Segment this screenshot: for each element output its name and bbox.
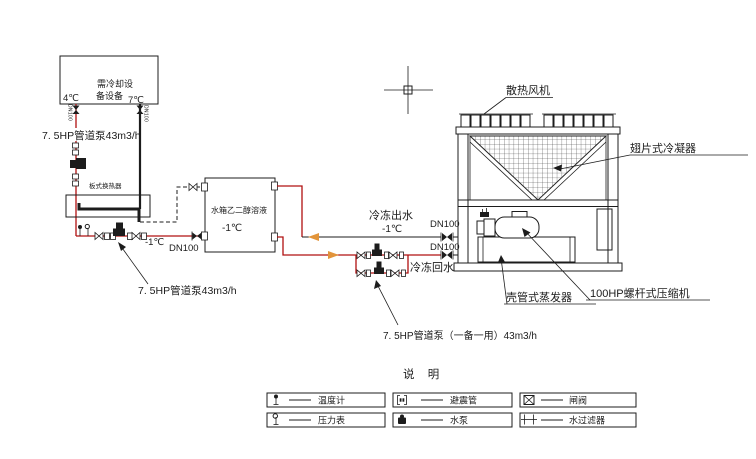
fan-assembly <box>459 114 616 127</box>
plate-heat-exchanger: 板式换热器 <box>66 181 150 222</box>
tank-label: 水箱乙二醇溶液 <box>211 205 267 215</box>
valve-icon <box>73 106 80 115</box>
compressor <box>477 208 539 238</box>
legend-cell-flex-connector: 避震管 <box>393 393 512 407</box>
flow-arrow-left-icon <box>308 233 319 241</box>
chiller-base <box>454 263 622 271</box>
legend-label: 压力表 <box>318 415 345 426</box>
inline-pump-icon <box>113 223 125 237</box>
valve-icon <box>137 106 144 115</box>
valve-icon <box>132 233 140 240</box>
fan-callout: 散热风机 <box>484 83 553 114</box>
drawing-canvas: 需冷却设 备设备 4℃ 7℃ DN100 DN100 7. 5HP管道泵43m3… <box>0 0 756 459</box>
return-pipe-7c: DN100 <box>137 104 149 209</box>
crosshair-marker <box>384 66 433 114</box>
cooling-load-label-line2: 备设备 <box>96 90 123 101</box>
legend-label: 避震管 <box>450 395 477 406</box>
glycol-dashed-pipe <box>140 184 201 223</box>
legend-cell-gate-valve: 闸阀 <box>520 393 636 407</box>
piping-diagram: 需冷却设 备设备 4℃ 7℃ DN100 DN100 7. 5HP管道泵43m3… <box>0 0 756 459</box>
legend-label: 闸阀 <box>569 396 587 406</box>
condenser-mesh <box>470 136 606 200</box>
pump1-label: 7. 5HP管道泵43m3/h <box>42 129 141 142</box>
pipe-dn-label: DN100 <box>143 105 149 122</box>
control-panel <box>597 209 612 250</box>
pump2-label: 7. 5HP管道泵43m3/h <box>138 284 237 297</box>
chilled-return-pipe: DN100 冷冻回水 <box>277 237 460 277</box>
duty-pump-branch <box>357 244 404 259</box>
return-dn-label: DN100 <box>430 242 460 253</box>
tank-temp-label: -1℃ <box>222 223 242 234</box>
glycol-temp-label: -1℃ <box>145 237 164 248</box>
legend-label: 水泵 <box>450 415 468 426</box>
supply-label: 冷冻出水 <box>369 208 413 222</box>
condenser-label: 翅片式冷凝器 <box>630 141 696 155</box>
flanged-valve-icon <box>192 232 202 241</box>
valve-icon <box>189 184 197 191</box>
supply-pipe-4c: DN100 <box>67 104 87 236</box>
glycol-dn-label: DN100 <box>169 243 199 254</box>
valve-icon <box>95 233 103 240</box>
glycol-supply-pipe: -1℃ DN100 <box>76 223 202 255</box>
legend-label: 温度计 <box>318 395 345 406</box>
compressor-label: 100HP螺杆式压缩机 <box>590 286 690 300</box>
chiller-unit <box>454 114 622 271</box>
parallel-pump-label: 7. 5HP管道泵（一备一用）43m3/h <box>383 329 537 342</box>
exchanger-label: 板式换热器 <box>89 181 122 190</box>
glycol-tank: 水箱乙二醇溶液 -1℃ <box>202 178 278 252</box>
legend: 说 明 温度计 避震管 <box>267 367 636 427</box>
cooling-load-box: 需冷却设 备设备 4℃ 7℃ <box>60 56 158 106</box>
pressure-gauge-icon <box>85 224 89 236</box>
legend-cell-thermometer: 温度计 <box>267 393 385 407</box>
thermometer-icon <box>78 225 82 236</box>
parallel-pump-callout: 7. 5HP管道泵（一备一用）43m3/h <box>374 280 537 342</box>
temp-7c-label: 7℃ <box>128 95 144 106</box>
legend-cell-pump: 水泵 <box>393 413 512 427</box>
fan-label: 散热风机 <box>506 83 550 97</box>
chilled-supply-pipe: 冷冻出水 -1℃ DN100 <box>277 186 460 242</box>
evaporator <box>478 237 575 262</box>
return-label: 冷冻回水 <box>410 260 454 274</box>
standby-pump-branch <box>357 262 406 277</box>
legend-cell-filter: 水过滤器 <box>520 413 636 427</box>
supply-dn-label: DN100 <box>430 219 460 230</box>
legend-title: 说 明 <box>403 367 444 381</box>
supply-temp-label: -1℃ <box>382 224 402 235</box>
cooling-load-label-line1: 需冷却设 <box>97 78 133 89</box>
pipe-dn-label: DN100 <box>67 104 73 121</box>
temp-4c-label: 4℃ <box>63 93 79 104</box>
legend-label: 水过滤器 <box>569 415 605 426</box>
legend-cell-pressure-gauge: 压力表 <box>267 413 385 427</box>
inline-pump-icon <box>70 158 86 169</box>
flanged-valve-icon <box>441 233 453 242</box>
flow-arrow-right-icon <box>328 251 339 259</box>
evaporator-label: 壳管式蒸发器 <box>506 290 572 304</box>
